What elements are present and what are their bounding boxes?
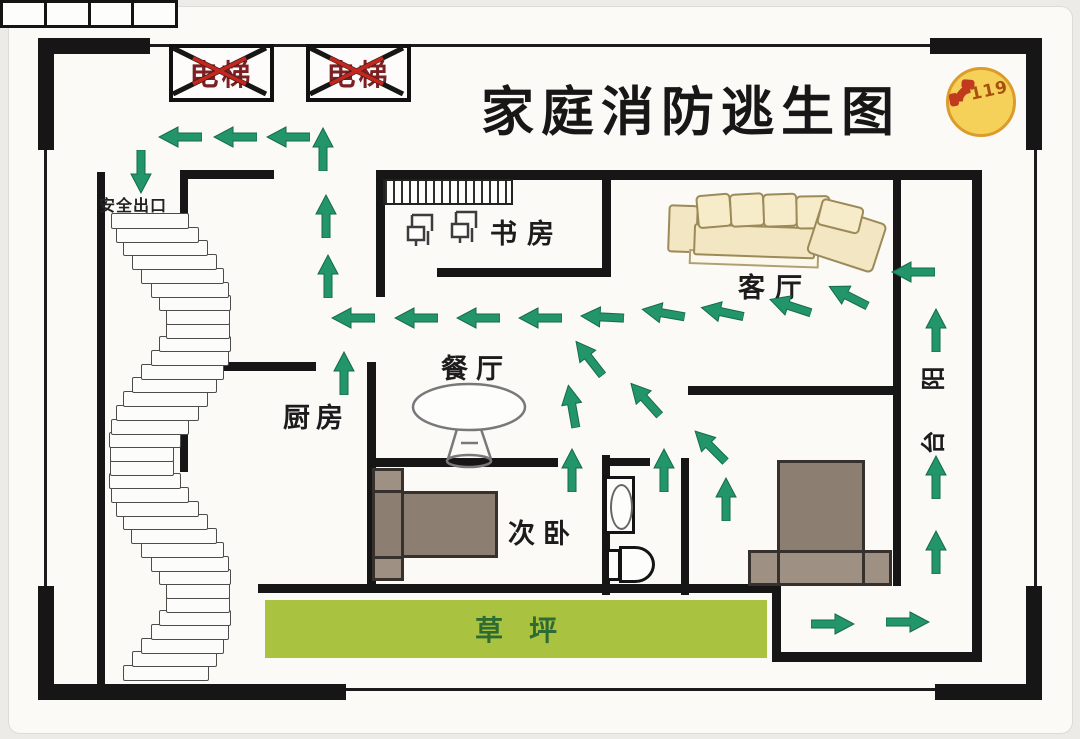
bed-icon xyxy=(748,550,780,586)
stair-step xyxy=(151,624,229,640)
frame-line xyxy=(346,688,936,691)
route-arrow-up xyxy=(925,530,947,574)
route-arrow-left xyxy=(331,307,375,329)
route-arrow-left xyxy=(456,307,500,329)
stair-step xyxy=(110,446,174,462)
frame-corner xyxy=(38,38,150,54)
room-label-kitchen: 厨房 xyxy=(283,396,349,435)
toilet-icon xyxy=(619,546,655,583)
stair-step xyxy=(159,295,231,311)
desk-chair-icon xyxy=(406,211,438,249)
stair-step xyxy=(151,350,229,366)
route-arrow-up-left xyxy=(687,423,734,470)
frame-corner xyxy=(38,38,54,150)
route-arrow-left xyxy=(394,307,438,329)
stair-step xyxy=(132,254,218,270)
route-arrow-left xyxy=(579,305,624,329)
stair-step xyxy=(116,501,199,517)
room-label-balcony-char2: 台 xyxy=(914,425,949,455)
bed-icon xyxy=(777,460,865,553)
room-label-second-bedroom: 次卧 xyxy=(508,512,578,551)
frame-line xyxy=(1034,148,1037,588)
frame-corner xyxy=(38,586,54,700)
desk-chair-icon xyxy=(450,208,482,246)
stair-step xyxy=(123,391,209,407)
bed-icon xyxy=(401,491,498,558)
route-arrow-left xyxy=(266,126,310,148)
wall-segment xyxy=(437,268,611,277)
stair-step xyxy=(110,460,174,476)
lawn-area: 草坪 xyxy=(265,600,767,658)
stair-step xyxy=(111,487,189,503)
wall-segment xyxy=(688,386,895,395)
stair-step xyxy=(123,665,209,681)
wall-segment xyxy=(893,172,901,586)
frame-corner xyxy=(1026,38,1042,150)
stair-step xyxy=(109,473,181,489)
bed-icon xyxy=(777,550,865,586)
stair-step xyxy=(109,432,181,448)
bed-icon xyxy=(862,550,892,586)
dining-table-icon xyxy=(408,381,530,473)
room-label-study: 书房 xyxy=(490,212,564,251)
route-arrow-up xyxy=(561,448,583,492)
stair-step xyxy=(116,227,199,243)
lawn-label: 草坪 xyxy=(449,609,583,649)
route-arrow-up xyxy=(653,448,675,492)
route-arrow-left-down xyxy=(823,276,872,316)
stair-step xyxy=(123,514,209,530)
route-arrow-left xyxy=(518,307,562,329)
bed-icon xyxy=(372,490,404,559)
wall-segment xyxy=(681,458,689,595)
bed-icon xyxy=(372,556,404,581)
route-arrow-right xyxy=(886,611,930,633)
stair-step xyxy=(151,556,230,572)
stair-step xyxy=(166,597,230,613)
route-arrow-up-left xyxy=(622,375,668,422)
stair-step xyxy=(141,638,224,654)
fire-escape-diagram-page: { "labels": { "title": "家庭消防逃生图", "eleva… xyxy=(0,0,1080,739)
route-arrow-up xyxy=(317,254,339,298)
sofa-icon xyxy=(661,180,890,276)
stair-step xyxy=(141,364,224,380)
wall-segment xyxy=(180,170,274,179)
wall-segment xyxy=(610,458,650,466)
route-arrow-up xyxy=(333,351,355,395)
route-arrow-left xyxy=(158,126,202,148)
wall-segment xyxy=(972,170,982,662)
frame-corner xyxy=(1026,586,1042,700)
route-arrow-up xyxy=(925,455,947,499)
stair-step xyxy=(116,405,199,421)
route-arrow-up xyxy=(312,127,334,171)
stair-step xyxy=(159,569,231,585)
route-arrow-up-left xyxy=(557,382,586,429)
stair-step xyxy=(141,542,224,558)
closet-icon xyxy=(0,0,178,28)
wall-segment xyxy=(602,170,611,277)
diagram-title: 家庭消防逃生图 xyxy=(448,70,934,146)
fire-phone-badge: 119 xyxy=(946,67,1016,137)
room-label-dining-room: 餐厅 xyxy=(441,347,511,386)
stair-step xyxy=(123,240,209,256)
wall-segment xyxy=(772,652,980,662)
stair-step xyxy=(131,528,217,544)
route-arrow-left xyxy=(213,126,257,148)
wall-segment xyxy=(772,584,781,662)
route-arrow-left xyxy=(891,261,935,283)
frame-corner xyxy=(38,684,346,700)
stair-step xyxy=(111,419,189,435)
stair-step xyxy=(141,268,224,284)
stair-step xyxy=(151,282,229,298)
wall-segment xyxy=(97,172,105,688)
stair-step xyxy=(132,651,218,667)
safety-exit-label: 安全出口 xyxy=(99,192,179,216)
route-arrow-up xyxy=(715,477,737,521)
elevator-cross-icon xyxy=(308,46,405,96)
route-arrow-down-to-exit xyxy=(130,150,152,194)
room-label-balcony-char1: 阳 xyxy=(914,361,949,391)
bookshelf-icon xyxy=(383,179,513,205)
route-arrow-up-left xyxy=(567,334,611,382)
elevator-box: 电梯 xyxy=(306,44,411,102)
sink-icon xyxy=(604,476,635,534)
frame-line xyxy=(44,148,47,588)
route-arrow-up xyxy=(925,308,947,352)
stair-step xyxy=(166,323,230,339)
stair-step xyxy=(159,610,231,626)
wall-segment xyxy=(258,584,774,593)
stair-step xyxy=(159,336,231,352)
route-arrow-up xyxy=(315,194,337,238)
elevator-cross-icon xyxy=(171,46,268,96)
stair-step xyxy=(132,377,218,393)
stair-step xyxy=(166,583,230,599)
route-arrow-right xyxy=(811,613,855,635)
elevator-box: 电梯 xyxy=(169,44,274,102)
route-arrow-left-down xyxy=(639,298,686,327)
floor-plan-stage: 草坪 家庭消防逃生图 电梯 电梯 119 安全出口 书房 客厅 餐厅 厨房 次卧… xyxy=(0,0,1080,739)
stair-step xyxy=(166,309,230,325)
